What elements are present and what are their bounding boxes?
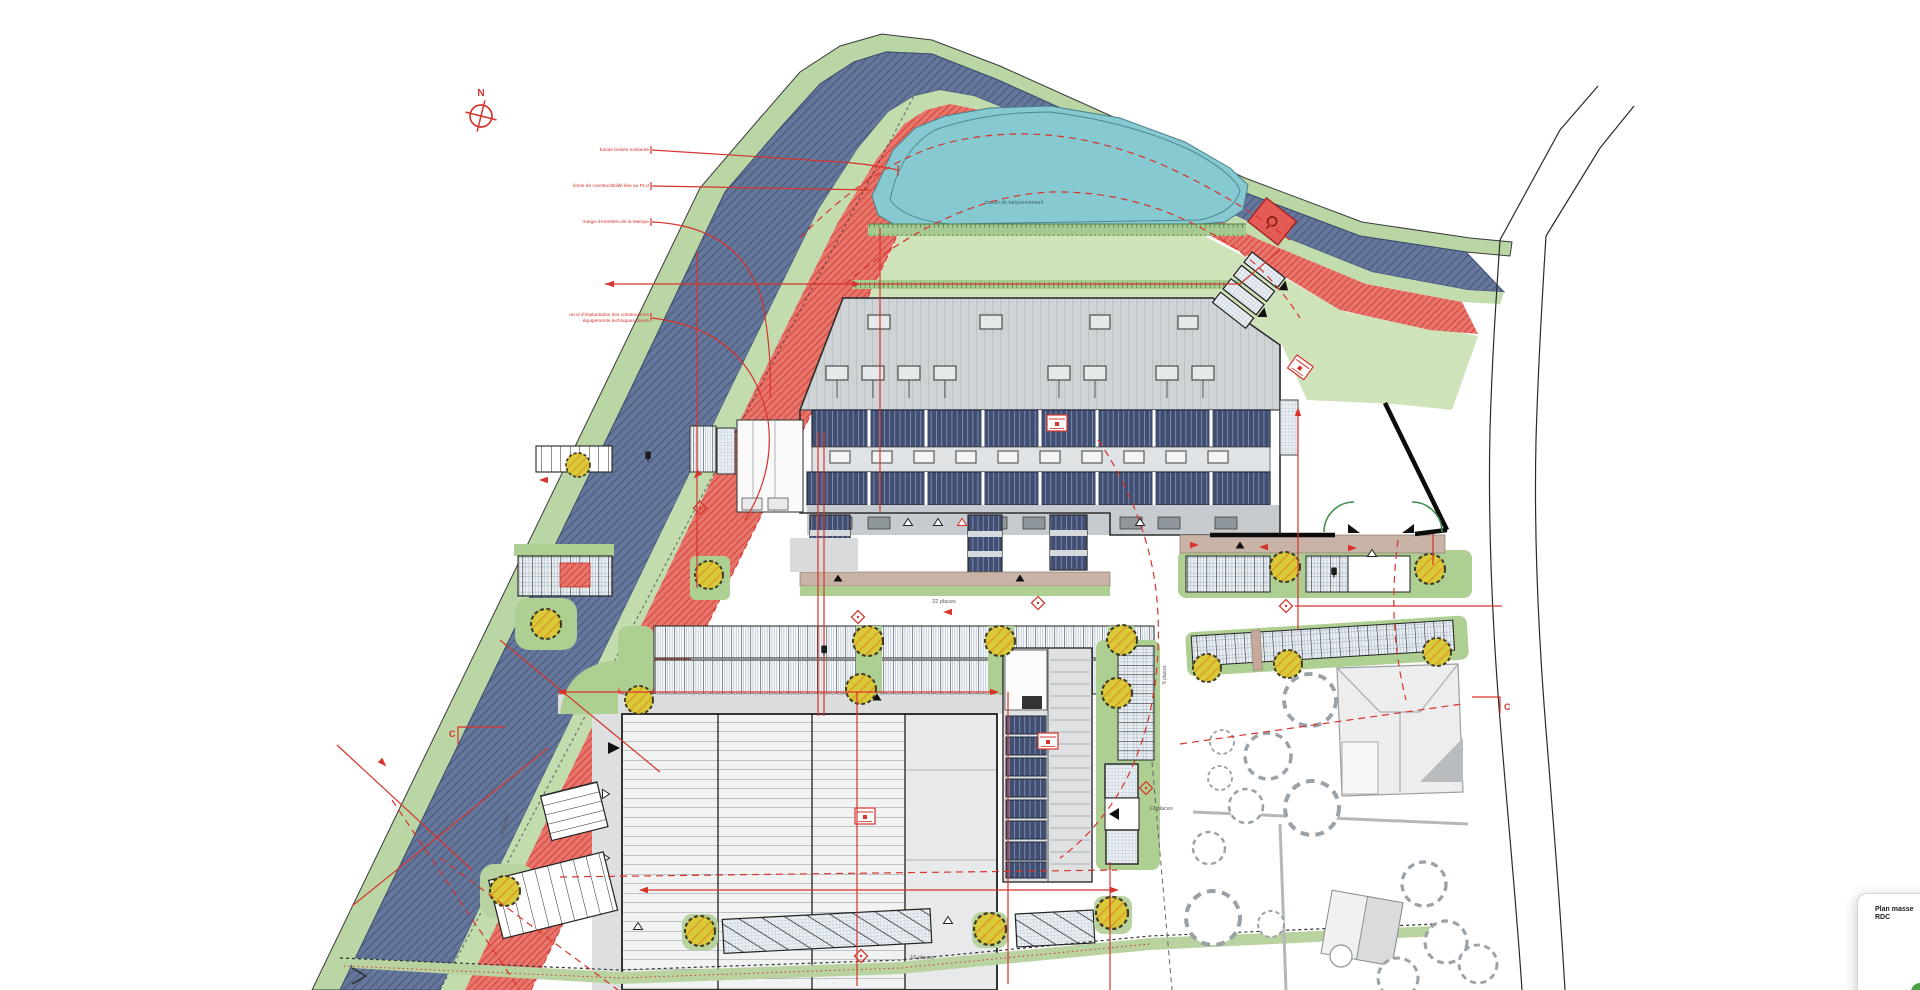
north-arrow: N — [465, 88, 496, 132]
north-label: N — [477, 88, 484, 99]
preview-card-title: Plan masse — [1875, 906, 1920, 914]
site-plan-drawing: bassin de tamponnement — [0, 0, 1920, 990]
neighbor-house-roof — [1337, 664, 1463, 796]
svg-text:C: C — [1504, 702, 1511, 712]
solar-strip-building — [1003, 648, 1092, 882]
parking-count-label: 16 places — [910, 955, 934, 961]
east-stall-column — [1096, 640, 1160, 870]
section-marker-right: C — [1472, 697, 1511, 713]
annotation-label: marge d'entretien de la Marque — [582, 219, 649, 225]
preview-card-subtitle: RDC — [1875, 914, 1920, 922]
site-plan-viewport: bassin de tamponnement — [0, 0, 1920, 990]
annotation-label: recul d'implantation des constructions — [569, 312, 649, 318]
page-preview-card[interactable]: Plan masse RDC — [1857, 893, 1920, 990]
east-road — [1489, 86, 1634, 990]
annotation-label: bande boisée existante — [600, 147, 650, 153]
annotation-label: limite de constructibilité liée au PLU — [573, 183, 649, 189]
solar-building-label — [1038, 733, 1058, 749]
parking-count-label: 12 places — [1149, 806, 1173, 812]
parking-count-label: 22 places — [932, 599, 956, 605]
neighbor-parcel — [1152, 664, 1497, 990]
preview-thumbnail[interactable] — [1890, 954, 1920, 990]
svg-text:C: C — [449, 729, 456, 739]
annotation-label: équipements techniques divers — [583, 318, 650, 324]
roof-equipment-label — [1047, 415, 1067, 431]
south-hall-label — [855, 808, 875, 824]
gate-arcs — [1324, 502, 1442, 532]
parking-count-label: 5 places — [1162, 665, 1168, 684]
